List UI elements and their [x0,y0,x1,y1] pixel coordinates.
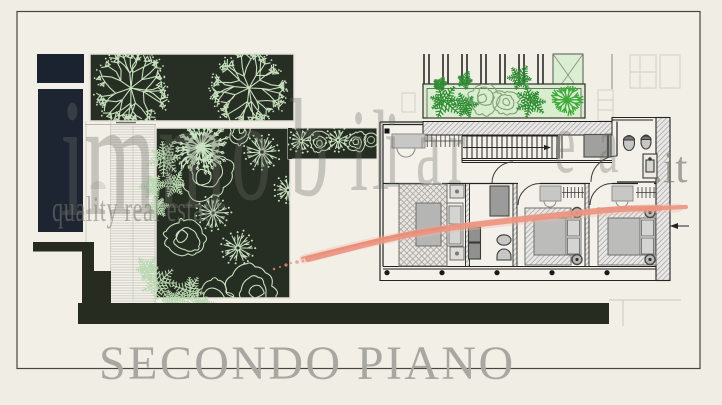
svg-text:SECONDO PIANO: SECONDO PIANO [99,337,516,390]
svg-text:i: i [350,85,368,216]
svg-text:r: r [448,97,466,205]
svg-text:e: e [554,95,575,192]
svg-text:.it: .it [652,143,687,192]
svg-text:o: o [231,70,271,231]
svg-text:a: a [416,93,441,208]
svg-text:i: i [384,90,401,211]
svg-text:quality real estate: quality real estate [52,190,221,230]
svg-text:b: b [290,71,328,226]
svg-text:a: a [598,98,618,191]
